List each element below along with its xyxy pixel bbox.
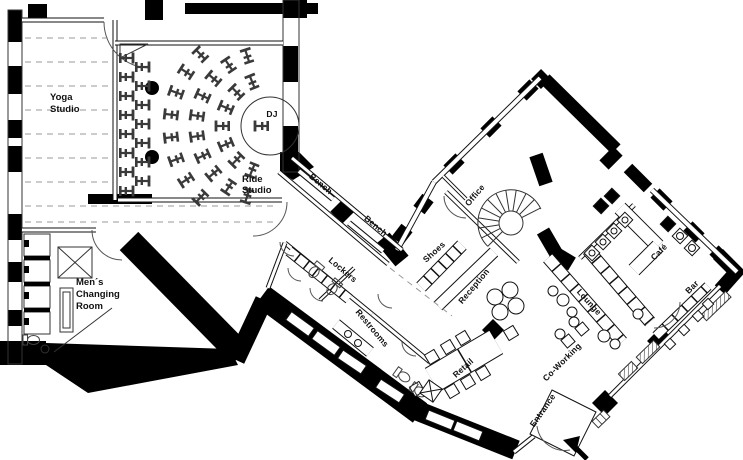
spin-bike — [217, 136, 235, 152]
sink — [355, 340, 362, 347]
spin-bike — [254, 121, 269, 132]
kitchen-equipment — [604, 188, 620, 204]
spin-bike — [191, 188, 210, 207]
floor-plan: Yoga Studio Ride Studio DJ Men´s Changin… — [0, 0, 743, 460]
spin-bike — [135, 81, 150, 92]
spin-bike — [193, 148, 212, 164]
pouf — [567, 307, 577, 317]
spin-bike — [135, 157, 150, 168]
display-case — [618, 362, 637, 381]
floor-plan-drawing: Yoga Studio Ride Studio DJ Men´s Changin… — [0, 0, 743, 460]
pouf — [502, 282, 518, 298]
spin-bike — [167, 85, 185, 101]
stair-step — [506, 190, 509, 211]
spin-bike — [193, 88, 212, 104]
spin-bike — [204, 69, 223, 87]
changing-bench — [60, 288, 73, 332]
spin-bike — [215, 121, 230, 132]
spin-bike — [189, 109, 206, 122]
stair-step — [478, 218, 499, 221]
staircase — [478, 190, 541, 247]
pouf — [633, 309, 643, 319]
spin-bike — [135, 100, 150, 111]
label-coworking: Co-Working — [541, 341, 583, 383]
spin-bike — [227, 83, 246, 102]
spin-bike — [135, 176, 150, 187]
spin-bike — [119, 53, 134, 64]
spin-bike — [135, 62, 150, 73]
spin-bike — [119, 186, 134, 197]
spin-bike — [204, 164, 223, 182]
label-dj: DJ — [266, 109, 277, 119]
spin-bike — [220, 55, 238, 74]
pouf — [610, 339, 620, 349]
svg-text:Room: Room — [76, 301, 103, 312]
kitchen-equipment — [595, 234, 611, 250]
svg-text:Changing: Changing — [76, 289, 120, 300]
label-ride-studio: Ride — [242, 174, 263, 185]
spin-bike — [119, 148, 134, 159]
label-yoga-studio: Yoga — [50, 92, 73, 103]
spin-bike — [119, 91, 134, 102]
spin-bike — [240, 47, 255, 65]
stove — [660, 216, 676, 232]
spin-bike — [163, 108, 180, 121]
pouf — [492, 304, 508, 320]
lounge-table — [598, 330, 610, 342]
pouf — [487, 289, 503, 305]
pouf — [548, 286, 558, 296]
pouf — [508, 298, 524, 314]
spin-bike — [189, 130, 206, 143]
kitchen-equipment — [684, 240, 700, 256]
spin-bike — [119, 72, 134, 83]
label-mens-changing-room: Men´s — [76, 277, 103, 288]
spin-bike — [177, 171, 196, 189]
spin-bike — [119, 110, 134, 121]
column-round — [145, 81, 159, 95]
spin-bike — [227, 151, 246, 170]
spin-bike — [220, 178, 238, 197]
seat — [569, 317, 579, 327]
spin-bike — [244, 73, 260, 91]
sink — [345, 331, 352, 338]
chair — [503, 325, 518, 340]
spin-bike — [163, 131, 180, 144]
entrance-vestibule — [530, 390, 596, 456]
spin-bike — [191, 45, 210, 64]
svg-text:Studio: Studio — [50, 104, 80, 115]
kitchen-equipment — [606, 223, 622, 239]
spin-bike — [167, 152, 185, 168]
spin-bike — [177, 63, 196, 81]
spin-bike — [135, 119, 150, 130]
spin-bike — [217, 100, 235, 116]
seat — [555, 329, 565, 339]
stair-step — [513, 190, 516, 211]
kitchen-equipment — [593, 198, 609, 214]
spin-bike — [119, 167, 134, 178]
spin-bike — [135, 138, 150, 149]
lounge-table — [557, 294, 569, 306]
spin-bike — [119, 129, 134, 140]
svg-text:Studio: Studio — [242, 185, 272, 196]
